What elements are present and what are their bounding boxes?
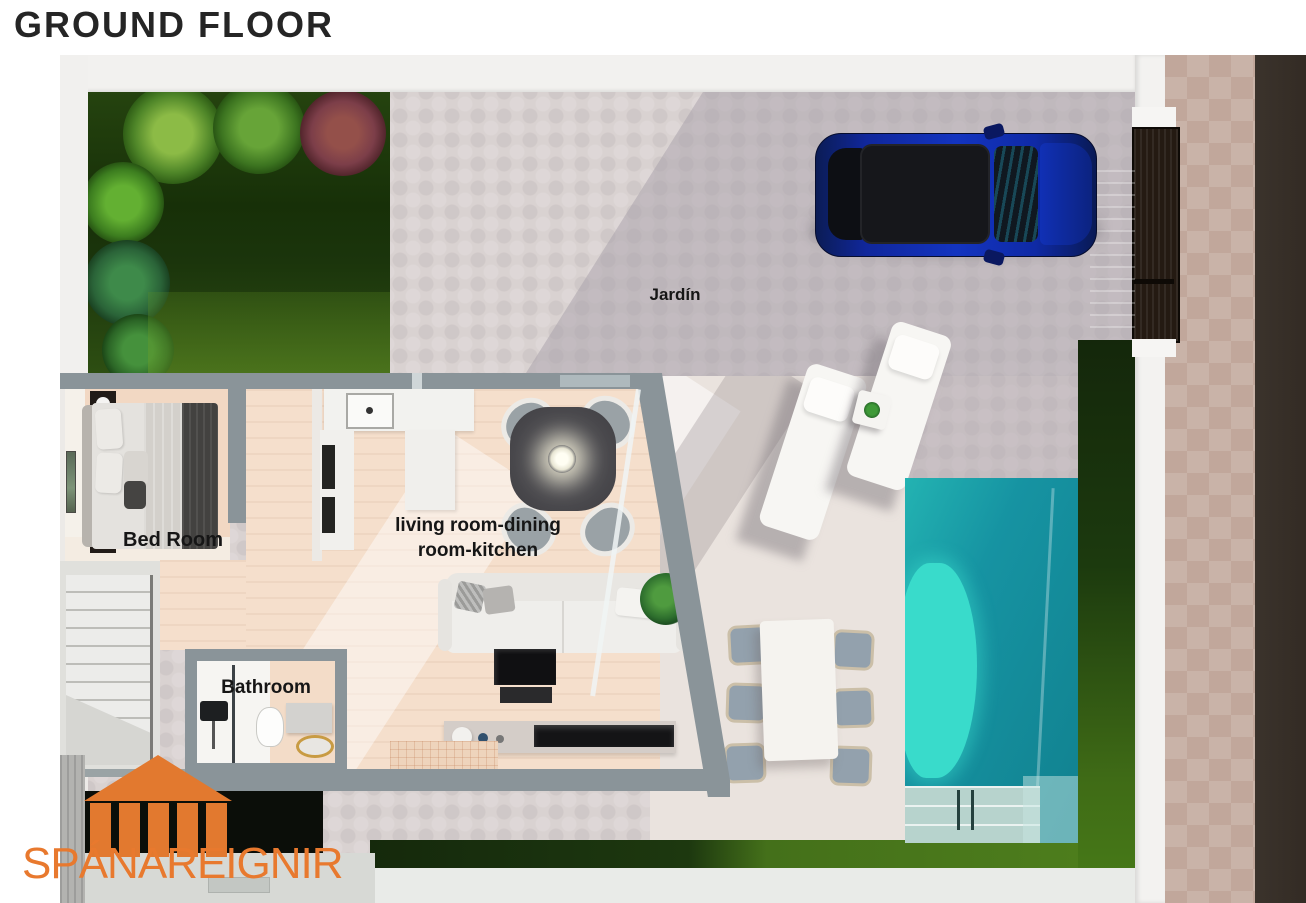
driveway-gate (1132, 127, 1180, 343)
fridge-appliance (322, 497, 335, 533)
agency-logo-text: SPÁNAREIGNIR (22, 839, 343, 889)
tv-shelf (500, 687, 552, 703)
bedroom-right-wall (228, 389, 246, 523)
pool-ladder-icon (957, 790, 960, 830)
hallway (60, 561, 160, 773)
pool-reflection (1034, 488, 1054, 818)
bed-pillow (124, 451, 148, 485)
outdoor-chair (831, 687, 874, 728)
gate-post (1132, 339, 1176, 357)
top-wall-white (60, 55, 1135, 92)
floor-plan-page: GROUND FLOOR (0, 0, 1306, 903)
toilet (256, 707, 284, 747)
car-hood (1040, 143, 1092, 245)
sofa-seat-divider (562, 601, 564, 653)
grass-strip-bottom (370, 840, 1078, 868)
rug (390, 741, 498, 769)
grass-strip-right (1078, 340, 1135, 903)
kitchen-sink (346, 393, 394, 429)
window-glass (412, 373, 422, 389)
lawn-light-patch (148, 292, 390, 376)
outdoor-chair (723, 742, 766, 783)
potted-plant-icon (862, 400, 881, 419)
kitchen-island (405, 430, 455, 510)
pendant-light-icon (548, 445, 576, 473)
garden-area (88, 92, 390, 376)
outdoor-chair (831, 629, 875, 671)
pool-corner-step (1023, 776, 1078, 843)
pool (905, 478, 1078, 843)
oven-appliance (322, 445, 335, 489)
car-rear-window (828, 148, 864, 240)
tv-screen (494, 649, 556, 685)
shower-stem (212, 721, 215, 749)
sofa-pillow (453, 580, 486, 613)
house-top-wall (60, 373, 660, 389)
agency-logo: SPÁNAREIGNIR (22, 755, 307, 895)
red-plant-icon (300, 92, 386, 176)
car (815, 133, 1097, 257)
label-garden: Jardín (620, 284, 730, 306)
patio-door-glass (560, 375, 630, 387)
lounger-cushion (886, 333, 941, 381)
page-title: GROUND FLOOR (14, 4, 334, 46)
hall-floor-patch (160, 560, 246, 650)
shower-panel (200, 701, 228, 721)
outdoor-dining-table (760, 619, 839, 761)
palm-plant-icon (213, 92, 305, 174)
wall-art (66, 451, 76, 513)
car-windshield (994, 146, 1038, 242)
bottom-wall-white (320, 868, 1135, 903)
label-bedroom: Bed Room (113, 527, 233, 553)
label-living-area: living room-dining room-kitchen (378, 513, 578, 563)
bed-pillow (95, 452, 123, 493)
temple-roof (84, 755, 232, 801)
vanity-sink (286, 703, 332, 733)
stair-railing (150, 575, 153, 765)
faucet-icon (366, 407, 373, 414)
console-screen (534, 725, 674, 747)
pool-shallow-area (905, 563, 977, 778)
label-bathroom: Bathroom (200, 675, 332, 700)
bed-pillow-dark (124, 481, 146, 509)
left-wall-white (60, 55, 88, 375)
road (1255, 55, 1306, 903)
fern-plant-icon (88, 162, 164, 244)
car-roof-glass (860, 144, 990, 244)
gate-crossbar (1134, 279, 1174, 284)
sofa-pillow (482, 585, 515, 615)
gate-post (1132, 107, 1176, 127)
bed-pillow (95, 408, 124, 450)
pool-ladder-icon (971, 790, 974, 830)
sofa-arm (438, 579, 452, 651)
